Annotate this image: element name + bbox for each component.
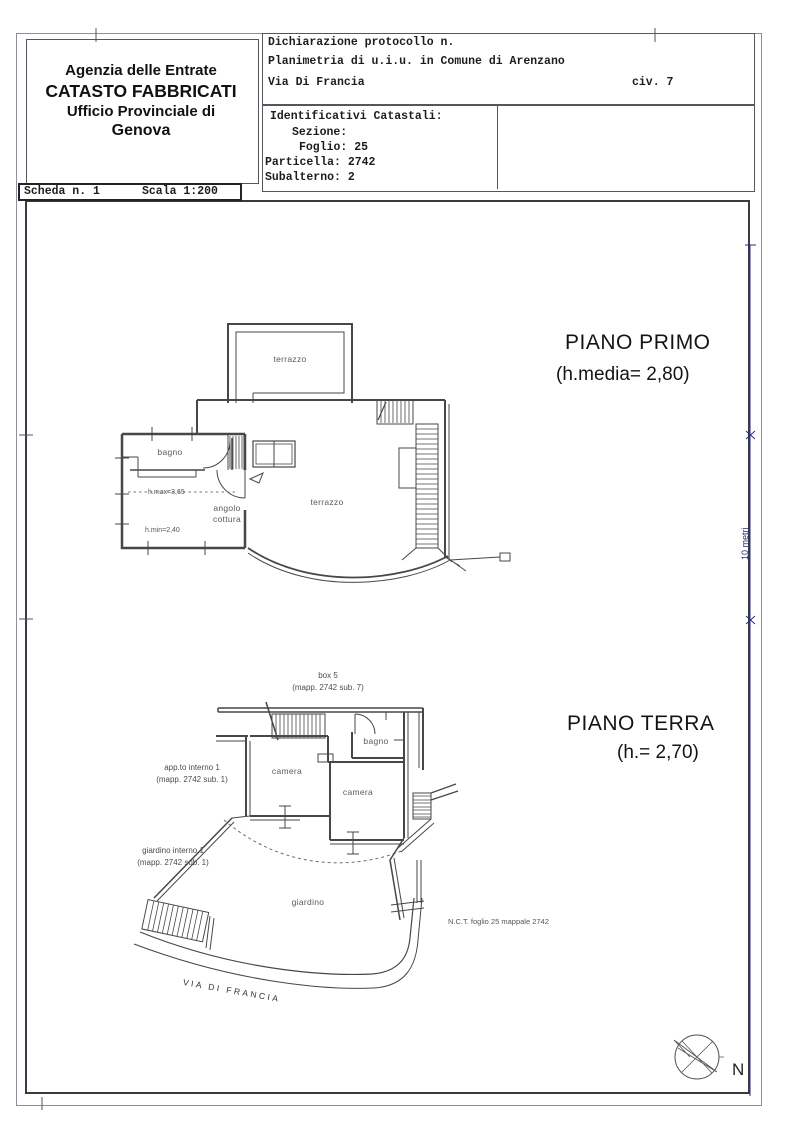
room-angolo-cottura: angolo cottura (204, 503, 250, 525)
room-terrazzo-top: terrazzo (273, 354, 306, 364)
scale-bar (745, 245, 756, 1096)
room-bagno-pp: bagno (157, 447, 182, 457)
room-giardino: giardino (292, 897, 325, 907)
compass-icon (674, 1035, 724, 1079)
room-camera-2: camera (343, 787, 373, 797)
label-box5-mapp: (mapp. 2742 sub. 7) (292, 683, 364, 692)
piano-terra-height: (h.= 2,70) (617, 742, 699, 764)
label-appto-mapp: (mapp. 2742 sub. 1) (156, 775, 228, 784)
floor-plan-drawing (0, 0, 800, 1131)
room-camera-1: camera (272, 766, 302, 776)
room-terrazzo-main: terrazzo (310, 497, 343, 507)
piano-terra-title: PIANO TERRA (567, 712, 714, 736)
piano-primo-height: (h.media= 2,80) (556, 364, 690, 386)
label-giardino-interno: giardino interno 1 (142, 846, 204, 855)
label-h-min: h.min=2,40 (145, 527, 180, 534)
compass-north-label: N (732, 1060, 744, 1080)
label-nct: N.C.T. foglio 25 mappale 2742 (448, 917, 549, 926)
label-box5: box 5 (318, 671, 338, 680)
fold-marks (19, 28, 655, 1110)
scale-bar-label: 10 metri (740, 480, 750, 560)
label-giardino-interno-mapp: (mapp. 2742 sub. 1) (137, 858, 209, 867)
label-appto: app.to interno 1 (164, 763, 220, 772)
cadastral-sheet: Agenzia delle Entrate CATASTO FABBRICATI… (0, 0, 800, 1131)
label-h-max: h.max=3,65 (148, 489, 185, 496)
room-bagno-pt: bagno (363, 736, 388, 746)
piano-primo-title: PIANO PRIMO (565, 331, 711, 355)
